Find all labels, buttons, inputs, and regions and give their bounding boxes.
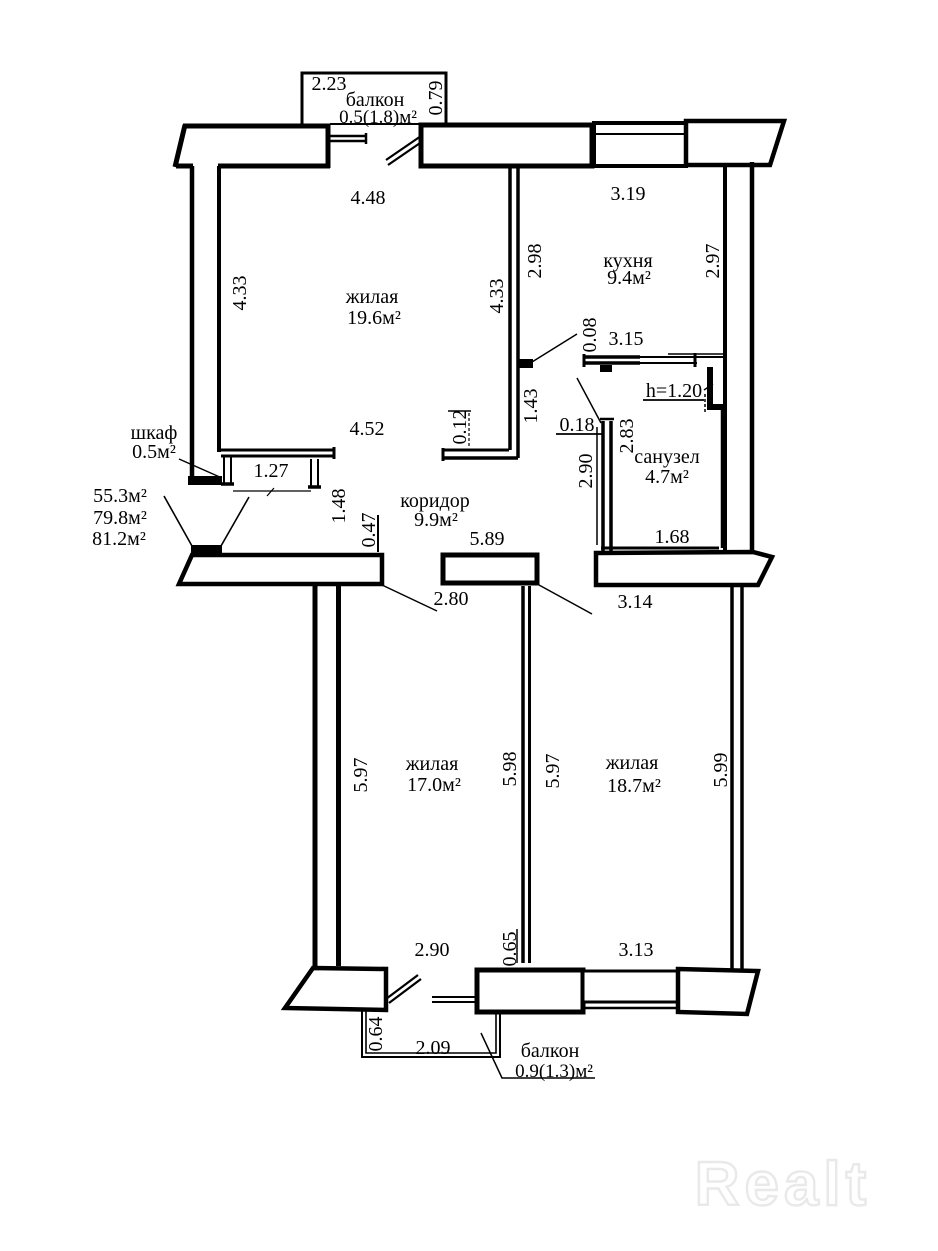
svg-text:2.09: 2.09 (416, 1037, 451, 1059)
svg-text:4.48: 4.48 (351, 187, 386, 209)
svg-text:жилая: жилая (605, 752, 659, 774)
svg-text:жилая: жилая (405, 753, 459, 775)
svg-text:9.9м²: 9.9м² (414, 509, 458, 531)
svg-text:9.4м²: 9.4м² (607, 267, 651, 289)
svg-text:балкон: балкон (521, 1040, 580, 1062)
svg-text:19.6м²: 19.6м² (347, 307, 401, 329)
svg-text:79.8м²: 79.8м² (93, 507, 147, 529)
svg-text:4.52: 4.52 (350, 418, 385, 440)
svg-text:0.65: 0.65 (499, 932, 521, 967)
svg-text:3.19: 3.19 (611, 183, 646, 205)
svg-text:1.68: 1.68 (655, 526, 690, 548)
svg-text:0.79: 0.79 (425, 81, 447, 116)
svg-text:55.3м²: 55.3м² (93, 485, 147, 507)
svg-text:2.90: 2.90 (415, 939, 450, 961)
svg-text:5.97: 5.97 (350, 758, 372, 793)
svg-text:3.14: 3.14 (618, 591, 653, 613)
svg-text:18.7м²: 18.7м² (607, 775, 661, 797)
svg-text:4.7м²: 4.7м² (645, 466, 689, 488)
svg-text:0.9(1.3)м²: 0.9(1.3)м² (515, 1061, 593, 1082)
svg-text:2.80: 2.80 (434, 588, 469, 610)
svg-text:2.23: 2.23 (312, 73, 347, 95)
svg-text:жилая: жилая (345, 286, 399, 308)
svg-text:5.99: 5.99 (710, 753, 732, 788)
svg-text:0.18: 0.18 (560, 414, 595, 436)
svg-text:2.90: 2.90 (575, 454, 597, 489)
svg-text:2.98: 2.98 (524, 244, 546, 279)
svg-text:0.64: 0.64 (365, 1017, 387, 1052)
svg-text:1.48: 1.48 (328, 489, 350, 524)
svg-text:1.27: 1.27 (254, 460, 289, 482)
svg-text:0.5м²: 0.5м² (132, 441, 176, 463)
svg-text:Realt: Realt (695, 1150, 872, 1219)
svg-text:17.0м²: 17.0м² (407, 774, 461, 796)
svg-text:1.43: 1.43 (520, 389, 542, 424)
svg-text:0.08: 0.08 (579, 318, 601, 353)
svg-text:5.97: 5.97 (542, 754, 564, 789)
svg-text:2.83: 2.83 (616, 419, 638, 454)
svg-text:5.98: 5.98 (499, 752, 521, 787)
svg-text:2.97: 2.97 (702, 244, 724, 279)
svg-text:4.33: 4.33 (229, 276, 251, 311)
svg-text:0.12: 0.12 (449, 410, 471, 445)
svg-text:3.13: 3.13 (619, 939, 654, 961)
svg-text:81.2м²: 81.2м² (92, 528, 146, 550)
svg-text:h=1.20: h=1.20 (646, 380, 702, 402)
svg-text:3.15: 3.15 (609, 328, 644, 350)
svg-text:санузел: санузел (634, 446, 699, 468)
svg-text:0.47: 0.47 (358, 513, 380, 548)
svg-text:5.89: 5.89 (470, 528, 505, 550)
svg-text:4.33: 4.33 (486, 279, 508, 314)
